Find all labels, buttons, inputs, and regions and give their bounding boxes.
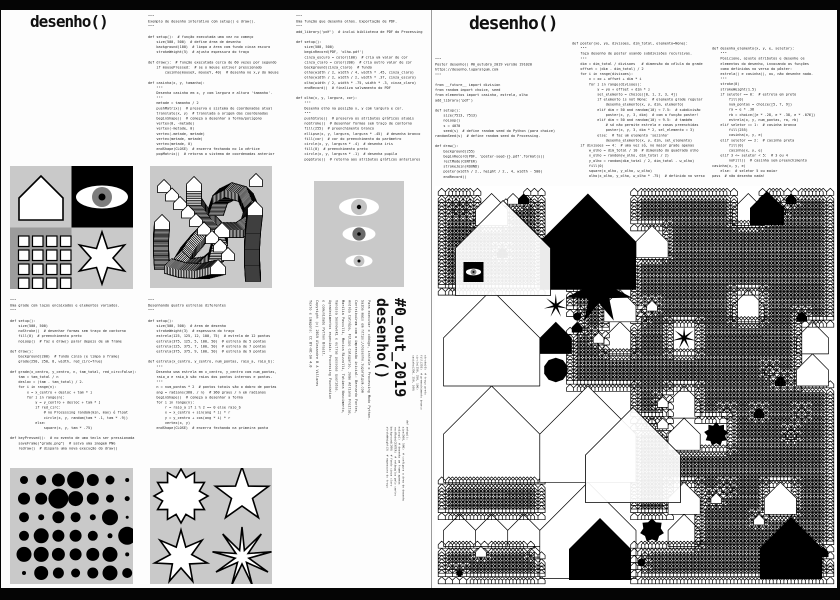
spine-code-b: stroke(0) # traço preto fill(255) # pree… [411, 355, 427, 440]
page-right: desenho() """ Poster desenho() #0_outubr… [432, 10, 837, 588]
code-block-estrelas: """ Desenhando quatro estrelas diferente… [148, 298, 288, 431]
spine-issue-title: #0_out_2019 desenho() [373, 298, 409, 397]
code-block-grade: """ Uma grade com laços encaixados e ele… [10, 298, 148, 451]
figure-house-stamp-trails [150, 166, 272, 288]
spine-code-a: def setup(): size(500, 500) # configura … [385, 420, 409, 585]
page-left: desenho() """ Exemplo de desenho interat… [1, 10, 431, 588]
figure-random-dot-grid [10, 468, 133, 584]
right-page-title: desenho() [469, 13, 558, 34]
code-block-desenha-elemento: def desenha_elemento(x, y, e, seletor): … [712, 46, 837, 179]
figure-four-stars [150, 468, 272, 584]
generative-poster-artwork [435, 186, 837, 586]
figure-three-eyes [314, 181, 404, 287]
page-fold-divider [431, 10, 432, 588]
colophon-text: Para executar o código, instale o Proces… [307, 300, 372, 450]
code-block-poster-fn: def poster(xo, yo, divisoes, dim_total, … [572, 41, 710, 179]
zine-spread: desenho() """ Exemplo de desenho interat… [1, 10, 837, 588]
code-block-interactive: """ Exemplo de desenho interativo com se… [148, 14, 287, 157]
left-page-title: desenho() [30, 12, 108, 31]
code-block-poster-setup: """ Poster desenho() #0_outubro_2019 ver… [435, 57, 571, 179]
document-viewer: desenho() """ Exemplo de desenho interat… [0, 0, 840, 600]
code-block-olhos: """ Uma função que desenha olhos. Export… [296, 14, 433, 162]
figure-house-eye-squares-star [10, 166, 133, 289]
